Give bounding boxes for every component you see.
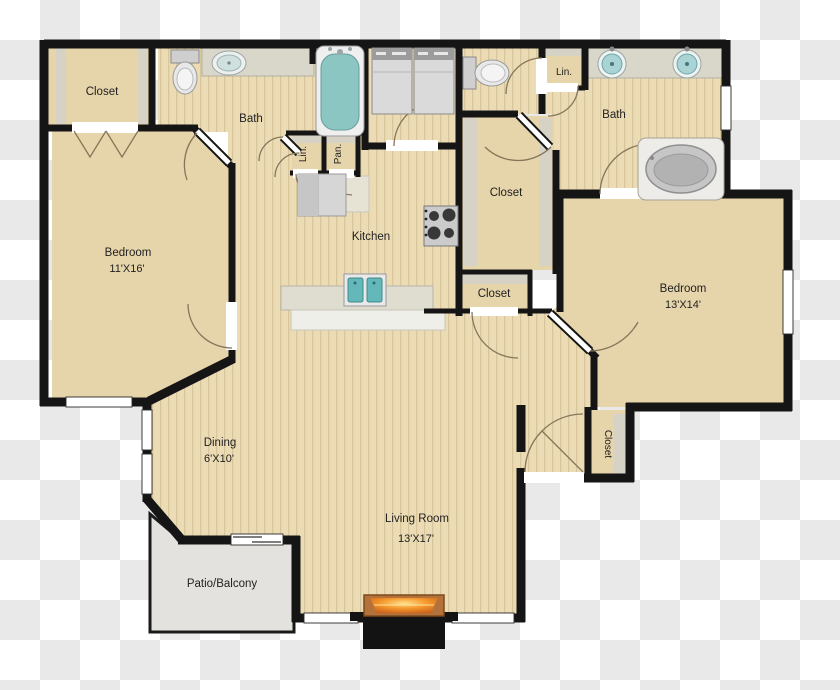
hall-closet-shelf [462,274,530,284]
bedroom-left-label: Bedroom [105,247,152,259]
door-opening [72,122,138,133]
washer-icon [372,48,412,114]
window [142,410,152,450]
dining-label: Dining [204,437,237,449]
door-opening [547,83,578,92]
window [452,613,514,623]
window [66,397,132,407]
bath-left-label: Bath [239,113,263,125]
fireplace-icon [350,595,458,649]
garden-tub-icon [638,138,724,200]
floor-plan-container: Closet Bath Lin. Pan. Kitchen Bedroom 11… [0,0,840,690]
door-opening [524,472,584,483]
bedroom-left-dimensions: 11'X16' [109,263,144,275]
walk-in-closet-shelf [464,118,477,266]
window [783,270,793,334]
kitchen-counter-small [345,176,369,212]
bedroom-right-label: Bedroom [660,283,707,295]
closet-top-left-label: Closet [86,86,119,98]
dryer-icon [414,48,454,114]
refrigerator-icon [298,174,346,216]
linen-top-right-label: Lin. [556,67,572,78]
linen-hall-shelf [292,135,322,143]
toilet-icon [171,50,199,94]
pantry-label: Pan. [333,144,344,165]
bathtub-icon [316,46,364,136]
entry-closet-label: Closet [602,430,613,459]
door-opening [536,58,547,94]
living-room-label: Living Room [385,513,449,525]
entry-closet-shelf [614,414,626,474]
patio-label: Patio/Balcony [187,578,258,590]
hall-closet-label: Closet [478,288,511,300]
linen-hall-label: Lin. [298,146,309,162]
door-opening [470,307,518,316]
dining-dimensions: 6'X10' [204,453,234,465]
living-room-dimensions: 13'X17' [398,533,434,545]
floor-plan-svg: Closet Bath Lin. Pan. Kitchen Bedroom 11… [0,0,840,690]
door-opening [226,302,237,350]
sink-icon [212,51,246,75]
closet-shelf [138,48,148,124]
kitchen-bar-counter [291,310,445,330]
window [142,454,152,494]
window [721,86,731,130]
walk-in-closet-label: Closet [490,187,523,199]
sliding-door [231,534,283,545]
window [304,613,358,623]
bedroom-right-dimensions: 13'X14' [665,299,701,311]
bath-right-label: Bath [602,109,626,121]
kitchen-sink-icon [344,274,386,306]
kitchen-label: Kitchen [352,231,390,243]
stove-icon [424,206,458,246]
closet-shelf [56,48,66,124]
